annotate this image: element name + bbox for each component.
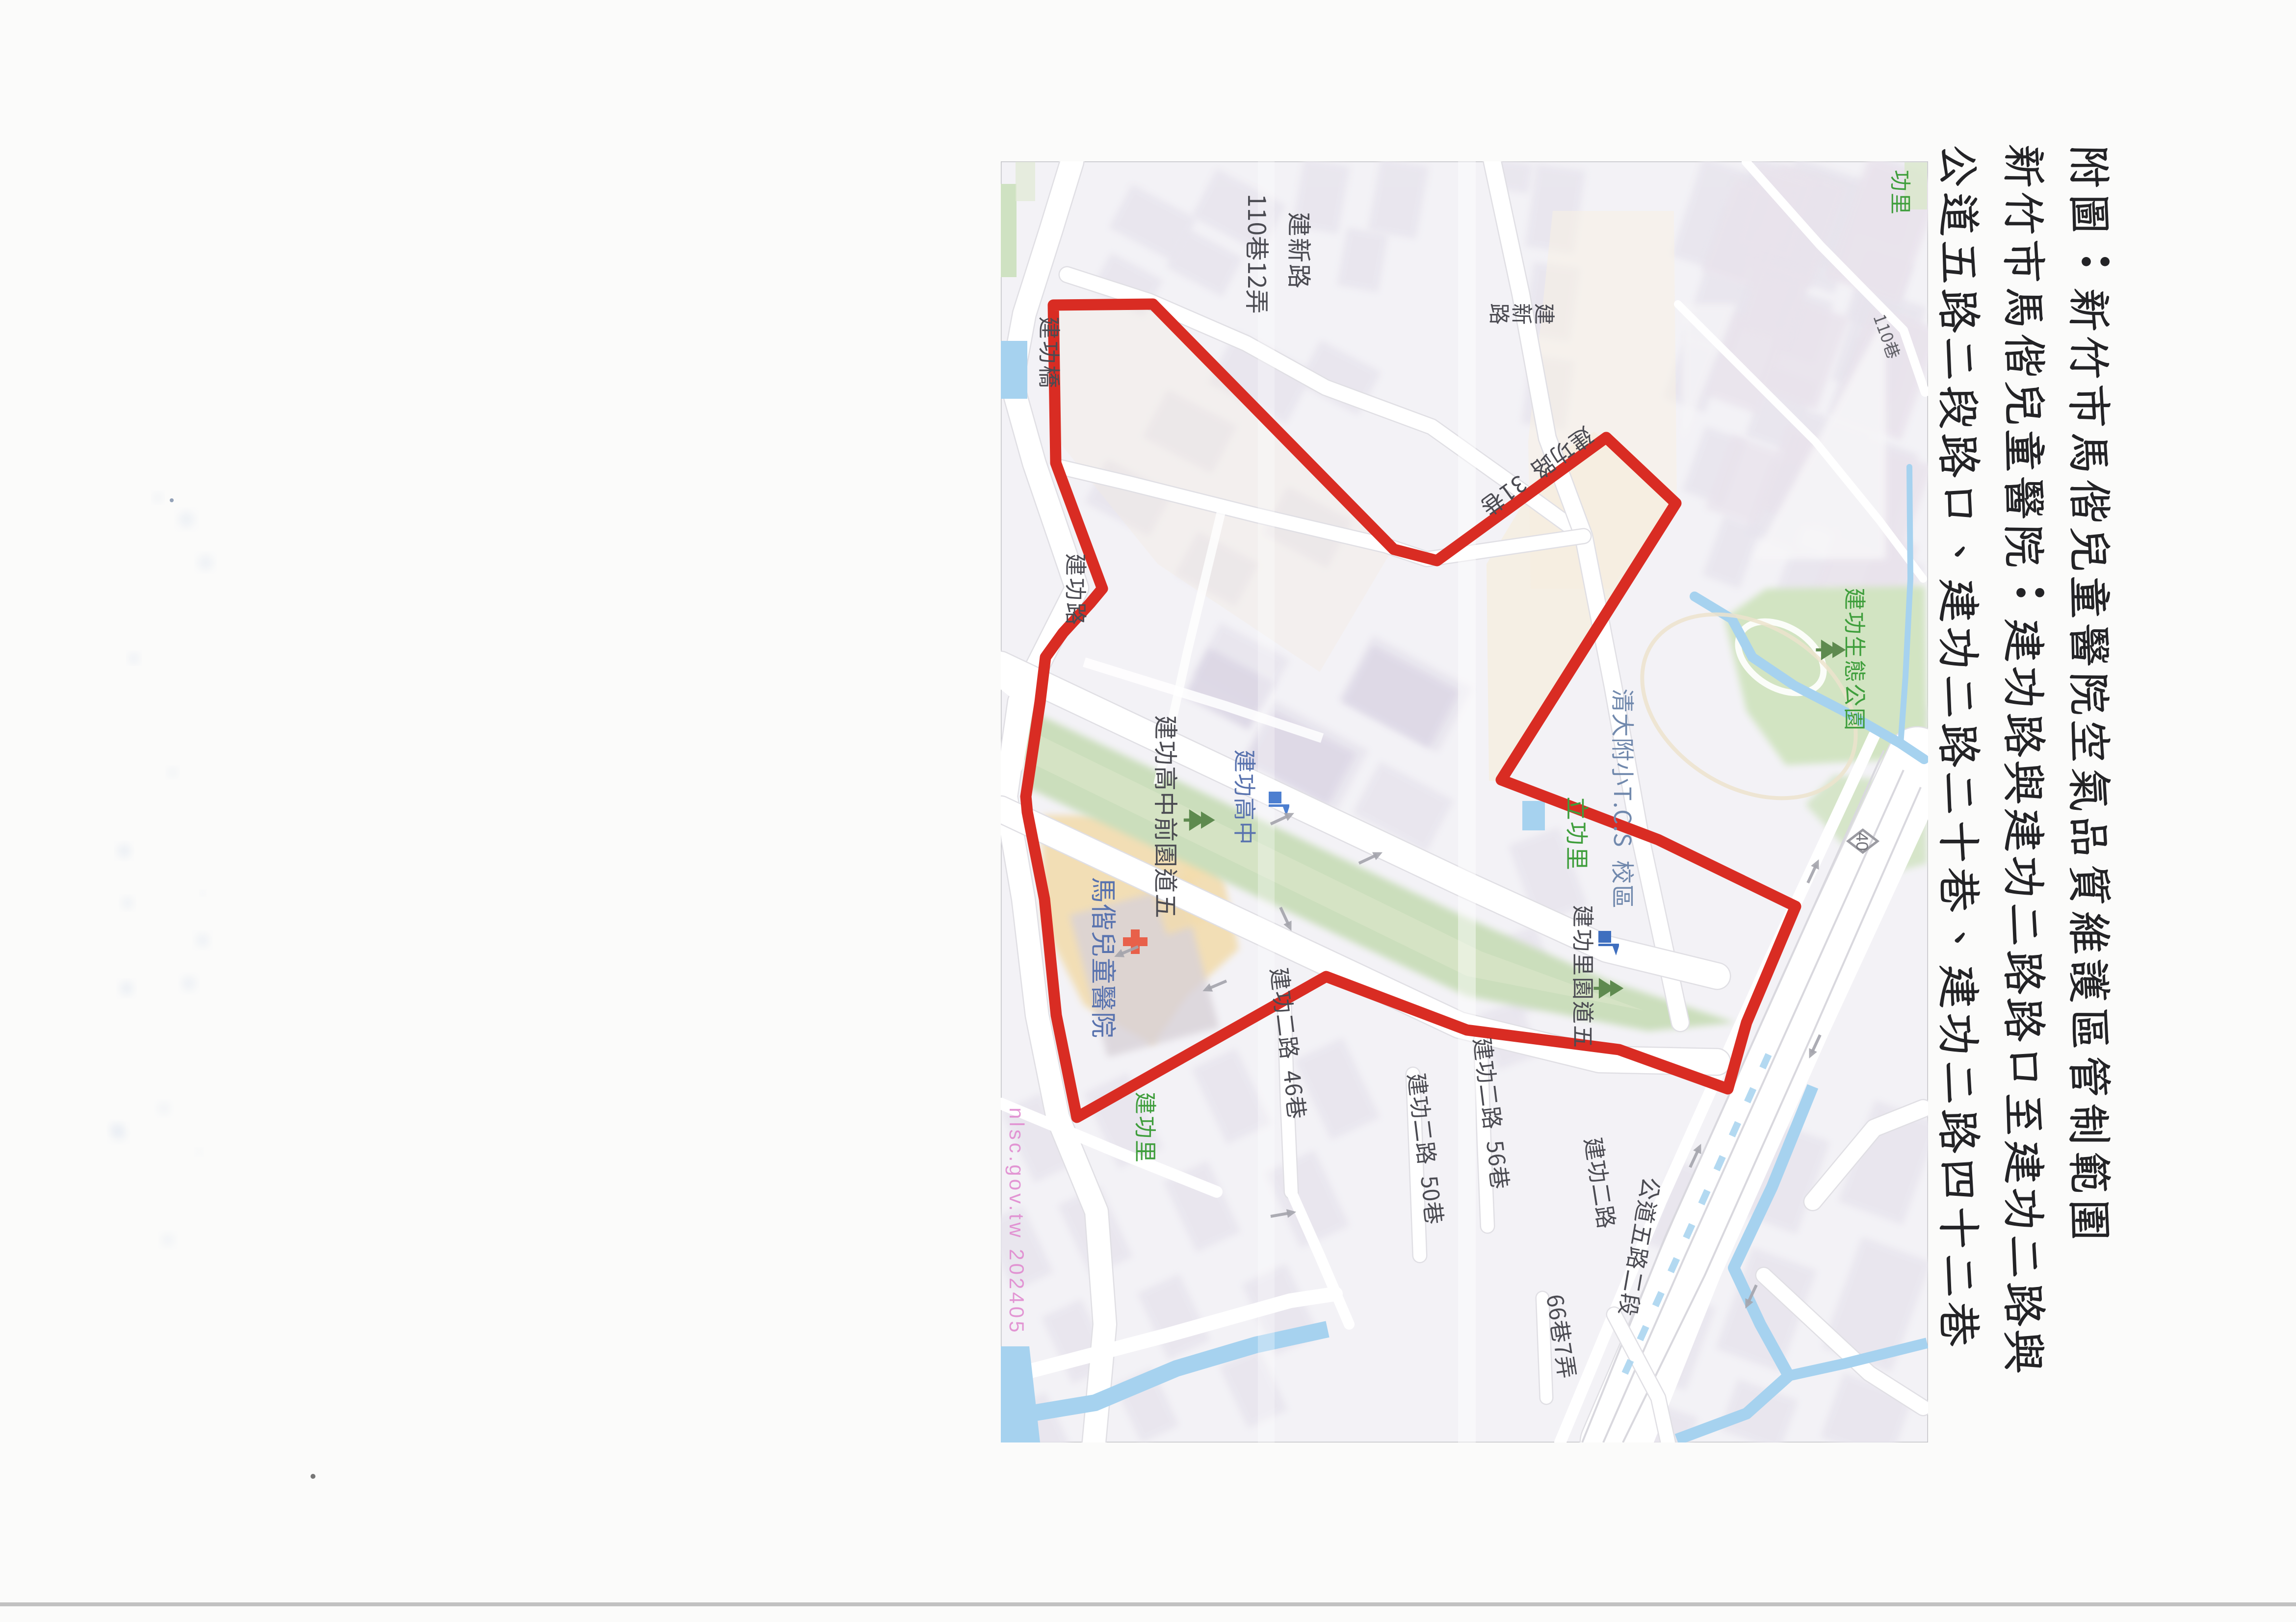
svg-text:40: 40 xyxy=(1852,832,1871,851)
svg-text:nlsc.gov.tw 202405: nlsc.gov.tw 202405 xyxy=(1005,1107,1028,1335)
